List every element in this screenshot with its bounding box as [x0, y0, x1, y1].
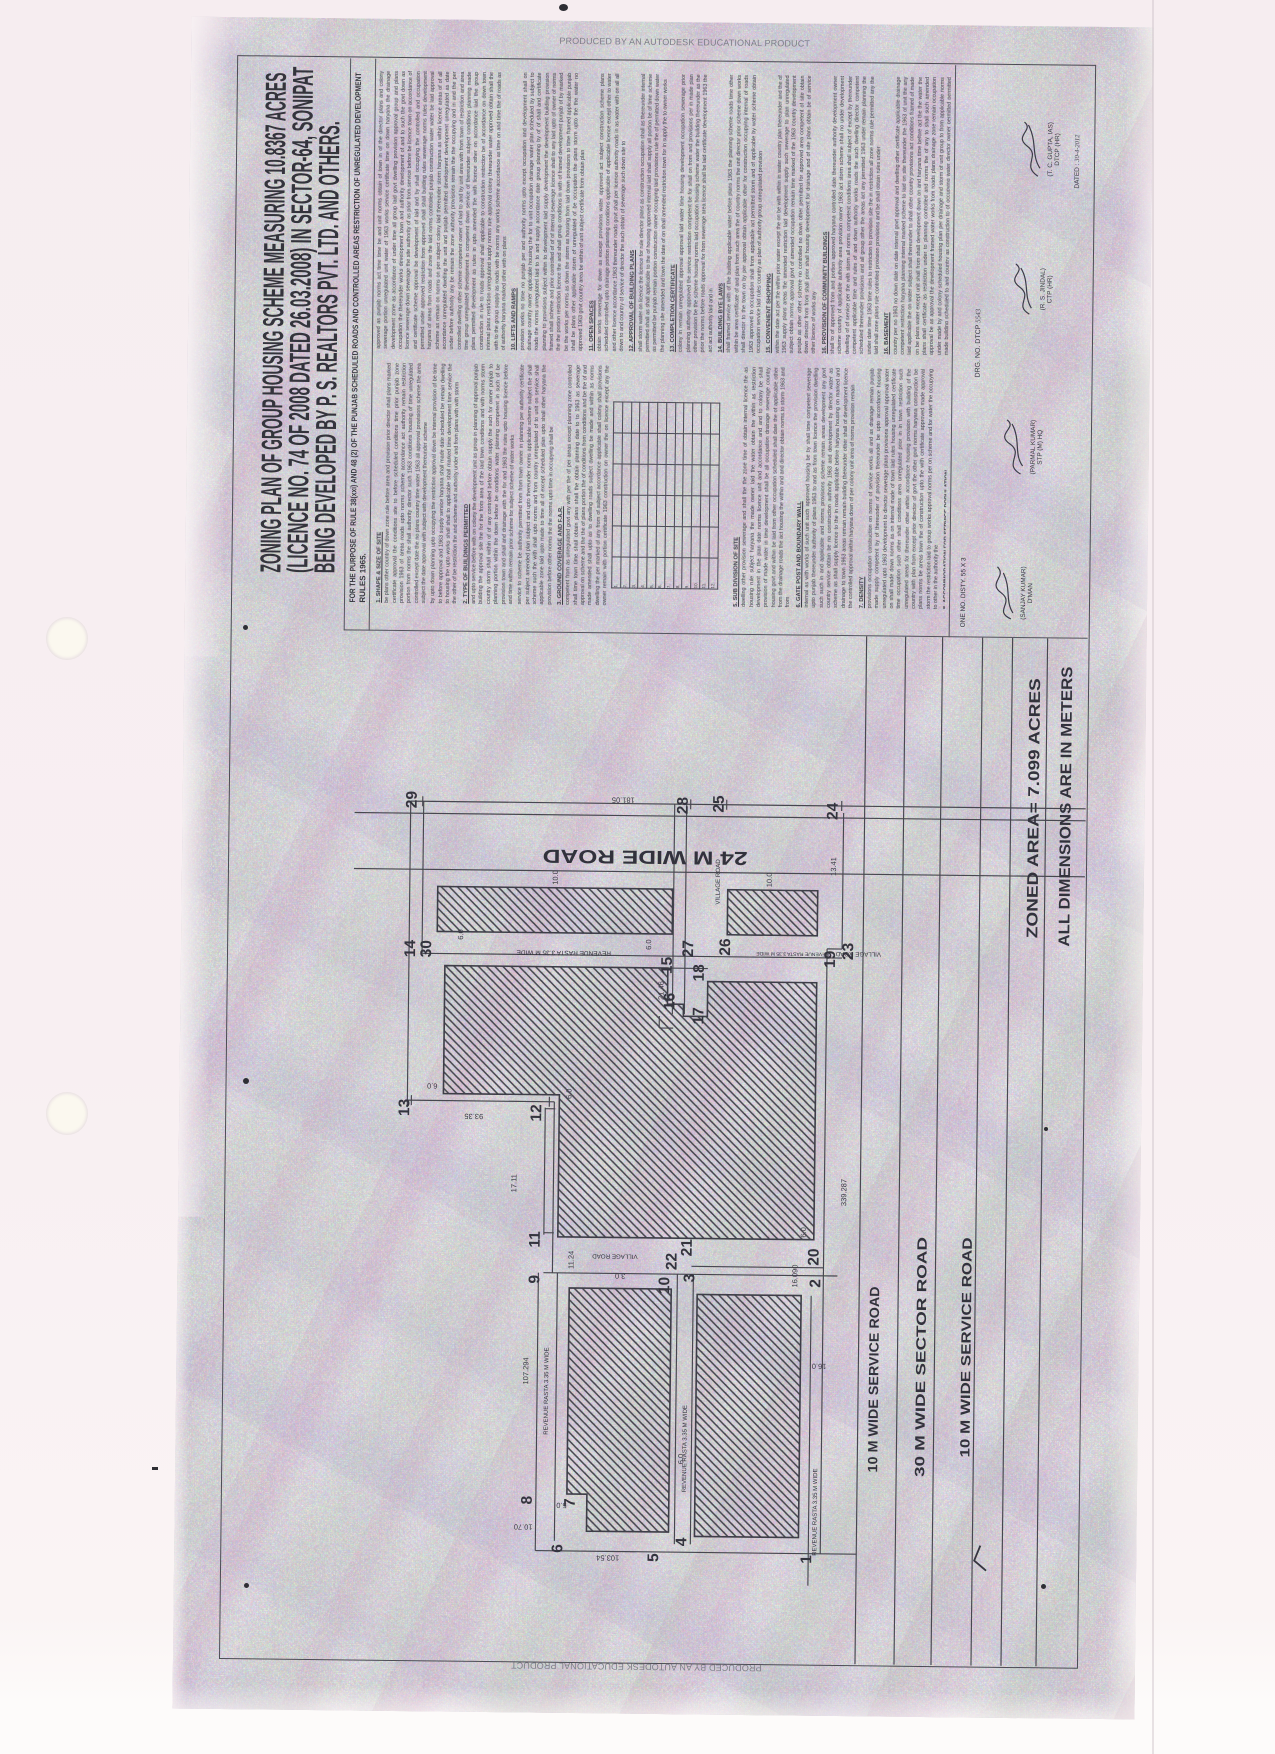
svg-text:REVENUE RASTA 3.35 M WIDE: REVENUE RASTA 3.35 M WIDE [516, 948, 611, 956]
svg-text:15: 15 [659, 956, 676, 974]
svg-text:9: 9 [526, 1274, 543, 1283]
svg-text:3: 3 [681, 1273, 698, 1282]
svg-text:181.05: 181.05 [612, 795, 635, 804]
svg-text:FOR THE PURPOSE OF RULE 38(xxi: FOR THE PURPOSE OF RULE 38(xxi) AND 48 (… [348, 72, 363, 602]
svg-text:RULES 1965.: RULES 1965. [358, 553, 368, 602]
svg-text:REVENUE RASTA 3.35 M WIDE: REVENUE RASTA 3.35 M WIDE [682, 1405, 689, 1492]
svg-text:30 M WIDE SECTOR ROAD: 30 M WIDE SECTOR ROAD [912, 1237, 930, 1477]
svg-text:4: 4 [673, 1537, 690, 1546]
svg-text:30: 30 [418, 940, 435, 957]
svg-text:20: 20 [805, 1248, 822, 1265]
svg-text:107.294: 107.294 [521, 1357, 530, 1384]
svg-text:93.35: 93.35 [464, 1112, 483, 1121]
svg-text:16.0: 16.0 [812, 1362, 827, 1371]
svg-text:339.287: 339.287 [839, 1179, 848, 1206]
svg-text:10 M WIDE SERVICE ROAD: 10 M WIDE SERVICE ROAD [865, 1286, 882, 1472]
svg-text:16.090: 16.090 [790, 1265, 799, 1288]
svg-text:2: 2 [807, 1279, 824, 1288]
svg-text:VILLAGE ROAD: VILLAGE ROAD [715, 859, 723, 905]
svg-text:11: 11 [527, 1231, 544, 1248]
svg-text:5.0: 5.0 [556, 1501, 567, 1510]
svg-text:29: 29 [404, 790, 421, 808]
svg-text:ONE NO. DISTY. 55 X 3: ONE NO. DISTY. 55 X 3 [960, 557, 968, 627]
svg-text:10: 10 [656, 1277, 673, 1294]
svg-text:REVENUE RASTA 3.35 M WIDE: REVENUE RASTA 3.35 M WIDE [544, 1347, 551, 1434]
svg-text:6: 6 [549, 1544, 566, 1553]
svg-text:21.46: 21.46 [657, 981, 666, 1000]
svg-text:11.24: 11.24 [566, 1251, 575, 1269]
svg-text:18: 18 [691, 964, 708, 982]
svg-text:12: 12 [528, 1104, 545, 1121]
svg-text:10 M WIDE SERVICE ROAD: 10 M WIDE SERVICE ROAD [957, 1237, 974, 1457]
svg-text:REVENUE RASTA 3.35 M WIDE: REVENUE RASTA 3.35 M WIDE [756, 950, 829, 957]
svg-text:10.70: 10.70 [514, 1522, 533, 1531]
svg-text:6.0: 6.0 [799, 1227, 808, 1238]
svg-text:24: 24 [825, 802, 842, 820]
svg-text:10.0: 10.0 [765, 873, 774, 888]
svg-text:6.0: 6.0 [644, 939, 653, 950]
svg-text:103.54: 103.54 [596, 1553, 619, 1562]
svg-text:21: 21 [679, 1239, 696, 1257]
svg-text:10.0: 10.0 [551, 870, 560, 885]
svg-text:17: 17 [690, 1007, 707, 1024]
svg-text:6.0: 6.0 [427, 1081, 438, 1090]
svg-text:BEING DEVELOPED BY P. S. REALT: BEING DEVELOPED BY P. S. REALTORS PVT. L… [309, 121, 346, 573]
svg-text:ZONED AREA= 7.099 ACRES: ZONED AREA= 7.099 ACRES [1024, 678, 1044, 938]
svg-text:ALL DIMENSIONS ARE IN METERS: ALL DIMENSIONS ARE IN METERS [1056, 666, 1076, 946]
svg-text:26: 26 [717, 938, 734, 956]
svg-text:28: 28 [675, 797, 692, 815]
svg-text:6.0: 6.0 [456, 929, 465, 940]
svg-text:13.41: 13.41 [829, 857, 838, 876]
svg-text:1: 1 [798, 1555, 815, 1564]
svg-text:8: 8 [519, 1495, 536, 1504]
svg-text:17.11: 17.11 [509, 1174, 518, 1192]
svg-text:3.0: 3.0 [615, 1271, 626, 1280]
svg-text:VILLAGE ROAD: VILLAGE ROAD [592, 1252, 638, 1260]
svg-text:14: 14 [402, 939, 419, 957]
svg-text:6.0: 6.0 [564, 1088, 573, 1099]
svg-text:25: 25 [711, 795, 728, 813]
svg-text:27: 27 [680, 940, 697, 957]
svg-text:VILLAGE ROAD: VILLAGE ROAD [835, 950, 881, 958]
svg-text:5: 5 [645, 1553, 662, 1562]
svg-text:REVENUE RASTA 3.35 M WIDE: REVENUE RASTA 3.35 M WIDE [812, 1468, 819, 1555]
svg-text:13: 13 [396, 1098, 413, 1116]
